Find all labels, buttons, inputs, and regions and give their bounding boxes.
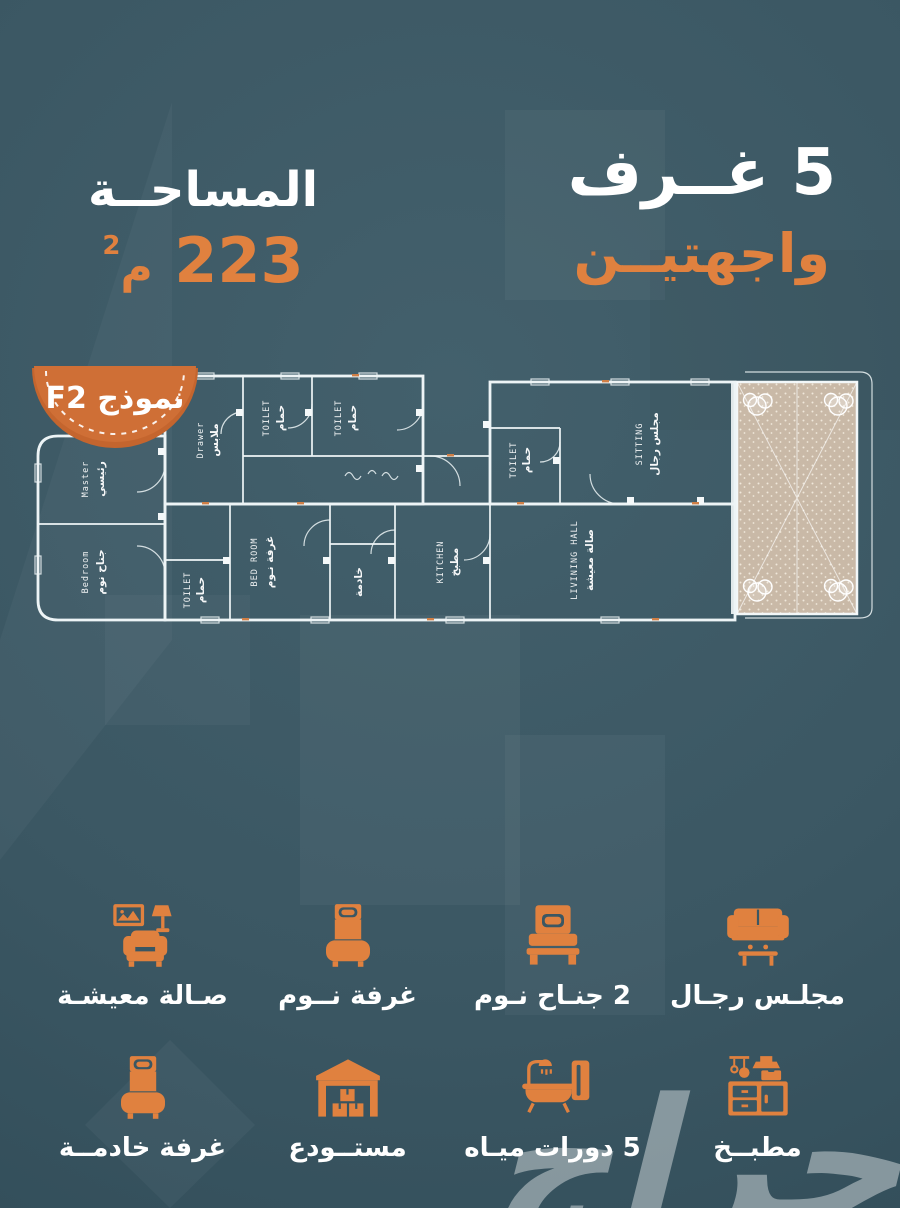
armchair-icon bbox=[104, 903, 182, 969]
warehouse-icon bbox=[309, 1055, 387, 1121]
kitchen-icon bbox=[719, 1055, 797, 1121]
svg-text:LIVINING HALL: LIVINING HALL bbox=[570, 520, 580, 600]
feature-label: غرفة خادمــة bbox=[59, 1133, 226, 1163]
svg-text:حمام: حمام bbox=[347, 405, 359, 431]
svg-text:حمام: حمام bbox=[521, 447, 533, 473]
area-label: المساحــة bbox=[88, 162, 318, 218]
area-value: 223 م2 bbox=[88, 224, 318, 297]
feature-storage: مستــودع bbox=[245, 1055, 450, 1163]
svg-text:حمام: حمام bbox=[275, 405, 287, 431]
feature-kitchen: مطبــخ bbox=[655, 1055, 860, 1163]
svg-text:TOILET: TOILET bbox=[509, 442, 519, 479]
svg-text:SITTING: SITTING bbox=[635, 423, 645, 466]
feature-label: مجلـس رجـال bbox=[670, 981, 845, 1011]
feature-living-hall: صـالة معيشـة bbox=[40, 903, 245, 1011]
single-bed-icon bbox=[309, 903, 387, 969]
feature-label: مستــودع bbox=[288, 1133, 406, 1163]
floor-plan-diagram: Master رئيسي Bedroom جناح نوم Drawer ملا… bbox=[0, 364, 900, 644]
svg-text:Master: Master bbox=[81, 461, 91, 498]
feature-bedroom-suites: 2 جنـاح نـوم bbox=[450, 903, 655, 1011]
svg-text:حمام: حمام bbox=[195, 577, 207, 603]
bathtub-icon bbox=[514, 1055, 592, 1121]
features-grid: مجلـس رجـال 2 جنـاح نـوم غرفة نــوم bbox=[40, 903, 860, 1163]
feature-label: صـالة معيشـة bbox=[57, 981, 228, 1011]
model-badge-text: نموذج F2 bbox=[45, 381, 184, 416]
maid-bed-icon bbox=[104, 1055, 182, 1121]
svg-text:KITCHEN: KITCHEN bbox=[436, 541, 446, 584]
area-header: المساحــة 223 م2 bbox=[88, 162, 318, 297]
feature-label: مطبــخ bbox=[713, 1133, 802, 1163]
double-bed-icon bbox=[514, 903, 592, 969]
svg-text:صالة معيشة: صالة معيشة bbox=[584, 529, 596, 591]
svg-text:TOILET: TOILET bbox=[334, 400, 344, 437]
svg-text:Bedroom: Bedroom bbox=[81, 551, 91, 594]
svg-text:TOILET: TOILET bbox=[262, 400, 272, 437]
feature-label: 5 دورات ميـاه bbox=[464, 1133, 640, 1163]
svg-text:جناح نوم: جناح نوم bbox=[95, 549, 107, 594]
svg-text:TOILET: TOILET bbox=[183, 572, 193, 609]
svg-text:رئيسي: رئيسي bbox=[95, 461, 107, 497]
svg-text:مجلس رجال: مجلس رجال bbox=[649, 412, 661, 476]
rooms-count-text: 5 غــرف bbox=[568, 136, 836, 210]
feature-bedroom: غرفة نــوم bbox=[245, 903, 450, 1011]
feature-label: 2 جنـاح نـوم bbox=[474, 981, 631, 1011]
feature-maid-room: غرفة خادمــة bbox=[40, 1055, 245, 1163]
svg-text:مطبخ: مطبخ bbox=[449, 548, 461, 577]
feature-majlis: مجلـس رجـال bbox=[655, 903, 860, 1011]
svg-text:ملابس: ملابس bbox=[209, 423, 221, 456]
feature-bathrooms: 5 دورات ميـاه bbox=[450, 1055, 655, 1163]
svg-text:BED ROOM: BED ROOM bbox=[250, 538, 260, 587]
sofa-icon bbox=[719, 903, 797, 969]
feature-label: غرفة نــوم bbox=[278, 981, 417, 1011]
rooms-header: 5 غــرف واجهتيــن bbox=[568, 136, 836, 285]
real-estate-poster: حراج 5 غــرف واجهتيــن المساحــة 223 م2 bbox=[0, 0, 900, 1208]
svg-text:غرفة نـوم: غرفة نـوم bbox=[264, 536, 276, 588]
svg-text:خادمة: خادمة bbox=[353, 567, 365, 597]
svg-text:Drawer: Drawer bbox=[196, 422, 206, 459]
terrace-area bbox=[731, 372, 872, 618]
facades-text: واجهتيــن bbox=[568, 222, 836, 285]
